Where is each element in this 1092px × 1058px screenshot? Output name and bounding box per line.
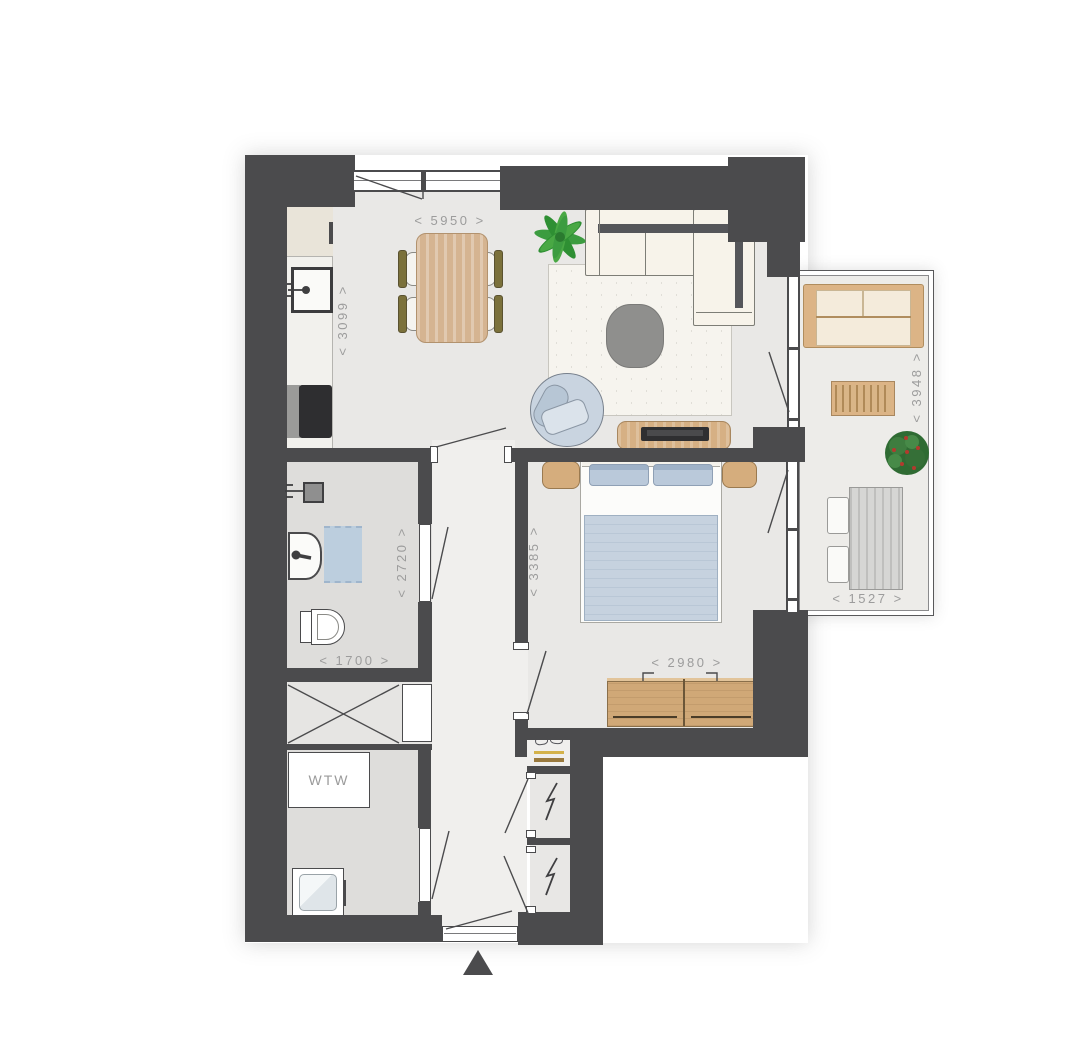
window-top <box>352 170 502 192</box>
window-top-midline <box>354 180 500 181</box>
dimension-bathroom-depth: < 2720 > <box>394 507 410 617</box>
wall-bottom <box>245 915 442 942</box>
pillow <box>653 464 713 486</box>
door-post <box>504 446 512 463</box>
bed-blanket <box>584 515 718 621</box>
wall-bath-bottom <box>285 668 432 682</box>
washing-machine-door <box>299 874 337 911</box>
balcony-table <box>849 487 903 590</box>
dimension-balcony-depth: < 3948 > <box>909 332 925 442</box>
window-mullion <box>787 418 800 421</box>
dimension-bedroom-width: < 2980 > <box>632 655 742 671</box>
hall-floor-upper <box>432 440 515 750</box>
sofa-chaise-line <box>696 312 752 313</box>
dimension-bathroom-width: < 1700 > <box>300 653 410 669</box>
bedroom-door-gap-floor <box>515 648 528 718</box>
door-post <box>513 642 529 650</box>
entrance-arrow <box>463 950 493 975</box>
washbasin <box>288 532 322 580</box>
wardrobe-top-rail <box>607 678 757 682</box>
balcony-bench <box>832 382 894 415</box>
wall-bedroom-left-stub <box>515 718 528 732</box>
balcony-chair <box>827 546 849 583</box>
wall-bath-right-upper <box>418 462 432 524</box>
wardrobe-divider <box>683 679 685 726</box>
wardrobe-shadow-line <box>691 716 751 718</box>
kitchen-cabinet <box>287 207 333 257</box>
dining-table <box>416 233 488 343</box>
kitchen-cabinet-handle <box>329 222 333 244</box>
bath-mat <box>324 526 362 583</box>
dining-chair-back <box>398 250 407 288</box>
bathroom-door-leaf <box>419 524 431 602</box>
nightstand <box>722 461 757 488</box>
wardrobe-shadow-line <box>613 716 677 718</box>
wall-mid-right-block <box>753 427 805 462</box>
window-mullion <box>786 598 799 601</box>
wall-wtw-right-upper <box>418 748 431 828</box>
meter-cupboard-floor-1 <box>530 774 570 838</box>
washing-machine-handle <box>343 880 346 906</box>
dimension-living-width: < 5950 > <box>395 213 505 229</box>
wall-right-stub <box>767 242 800 277</box>
dining-chair-back <box>494 250 503 288</box>
nightstand <box>542 461 580 489</box>
floor-plan: WTW <box>0 0 1092 1058</box>
door-post <box>513 712 529 720</box>
wall-band-left <box>285 448 437 462</box>
dimension-balcony-width: < 1527 > <box>813 591 923 607</box>
sofa-back-band <box>598 224 738 233</box>
dining-chair-back <box>398 295 407 333</box>
window-mullion <box>786 528 799 531</box>
wall-meter-right <box>570 728 603 918</box>
doormat-line <box>534 751 564 754</box>
doormat-line <box>534 758 564 762</box>
meter-door-post <box>526 830 536 838</box>
wall-right-bump <box>800 652 807 727</box>
window-mullion <box>787 347 800 350</box>
window-living-balcony <box>787 277 800 427</box>
dimension-kitchen-depth: < 3099 > <box>335 265 351 375</box>
sofa-cushion-line <box>645 233 646 275</box>
shower-head <box>303 482 324 503</box>
meter-door-post <box>526 906 536 914</box>
wtw-label: WTW <box>309 772 350 788</box>
hall-floor-lower <box>427 748 527 930</box>
dining-chair-back <box>494 295 503 333</box>
wall-band-right <box>507 448 755 462</box>
wardrobe <box>607 678 757 727</box>
technical-room-door-leaf <box>419 828 431 902</box>
entrance-threshold-line <box>444 933 516 934</box>
door-post <box>430 446 438 463</box>
wall-top-left <box>245 155 355 207</box>
kitchen-sink <box>291 267 333 313</box>
balcony-chair <box>827 497 849 534</box>
tv-screen-line <box>647 430 703 436</box>
dimension-bedroom-depth: < 3385 > <box>526 506 542 616</box>
meter-cupboard-floor-2 <box>530 845 570 917</box>
balcony-sofa-cushions <box>816 290 911 346</box>
balcony-sofa-divider <box>862 290 864 316</box>
wall-left <box>245 155 287 942</box>
kitchen-cooktop <box>299 385 332 438</box>
wall-shaft-bottom <box>285 744 432 750</box>
wtw-unit: WTW <box>288 752 370 808</box>
wall-top-mid <box>500 166 730 210</box>
wall-meter-divider <box>527 838 572 845</box>
balcony-sofa-backline <box>816 316 911 318</box>
meter-door-post <box>526 772 536 779</box>
window-bedroom-balcony <box>786 462 799 612</box>
pillow <box>589 464 649 486</box>
wall-bedroom-bottom-left <box>515 728 527 757</box>
meter-door-post <box>526 846 536 853</box>
coffee-table-pouf <box>606 304 664 368</box>
window-top-mullion <box>421 171 426 191</box>
entrance-threshold <box>442 926 518 942</box>
shaft-access-panel <box>402 684 432 742</box>
wall-top-right <box>728 157 805 242</box>
wall-bedroom-bottom-nook <box>527 728 572 740</box>
